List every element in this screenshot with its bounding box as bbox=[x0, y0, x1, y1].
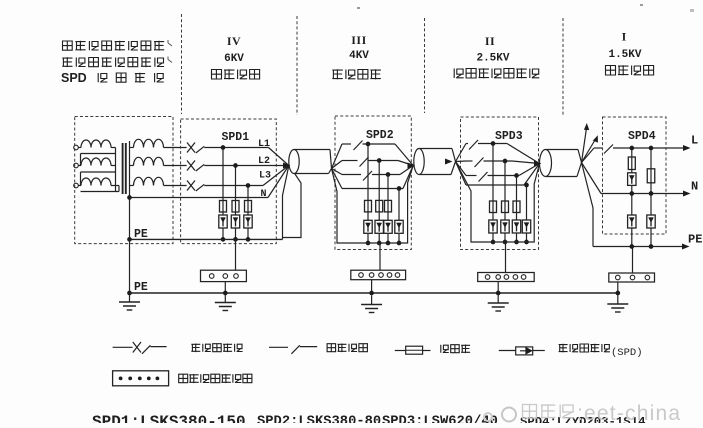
svg-text:SPD4: SPD4 bbox=[628, 130, 656, 143]
svg-text:IV: IV bbox=[227, 34, 241, 48]
svg-text:I: I bbox=[622, 30, 627, 44]
svg-text:III: III bbox=[351, 33, 367, 47]
svg-text:2.5KV: 2.5KV bbox=[476, 53, 509, 65]
svg-text:SPD1:LSKS380-150: SPD1:LSKS380-150 bbox=[92, 413, 246, 423]
svg-text:PE: PE bbox=[688, 233, 702, 247]
svg-text:L3: L3 bbox=[259, 171, 271, 182]
svg-text:L2: L2 bbox=[258, 156, 270, 167]
svg-text:SPD: SPD bbox=[61, 71, 87, 85]
svg-text:SPD3: SPD3 bbox=[495, 130, 523, 143]
svg-text:SPD3:LSW620/40: SPD3:LSW620/40 bbox=[382, 414, 498, 424]
svg-text:6KV: 6KV bbox=[224, 53, 244, 65]
svg-text:N: N bbox=[261, 189, 267, 200]
svg-text::eet-china: :eet-china bbox=[577, 402, 681, 423]
svg-text:PE: PE bbox=[134, 228, 148, 241]
svg-text:SPD1: SPD1 bbox=[222, 131, 250, 144]
svg-text:SPD2:LSKS380-80: SPD2:LSKS380-80 bbox=[257, 415, 381, 424]
svg-text:L1: L1 bbox=[258, 139, 270, 150]
svg-text:4KV: 4KV bbox=[349, 50, 369, 62]
svg-text:L: L bbox=[691, 134, 698, 148]
svg-text:N: N bbox=[691, 180, 698, 194]
svg-text:PE: PE bbox=[134, 281, 148, 294]
svg-text:SPD2: SPD2 bbox=[366, 129, 394, 142]
svg-text:(SPD): (SPD) bbox=[611, 347, 643, 359]
svg-text:II: II bbox=[485, 34, 495, 48]
svg-text:1.5KV: 1.5KV bbox=[608, 49, 641, 61]
